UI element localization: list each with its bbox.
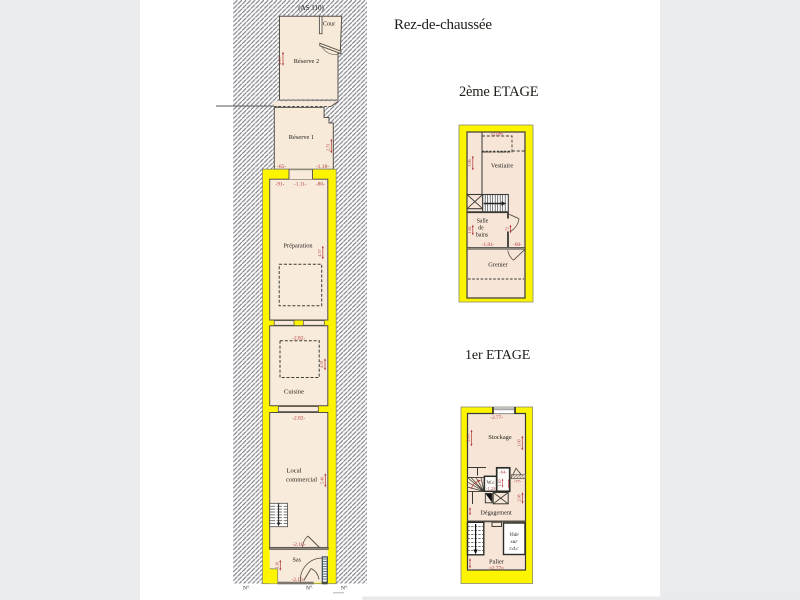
svg-text:1er ETAGE: 1er ETAGE: [465, 348, 530, 363]
svg-text:N°.: N°.: [306, 585, 313, 592]
svg-text:-1.23-: -1.23-: [486, 486, 497, 491]
svg-text:Grenier: Grenier: [488, 262, 508, 269]
svg-text:2.45: 2.45: [466, 434, 471, 441]
svg-text:Réserve 2: Réserve 2: [294, 58, 319, 65]
svg-text:(AS 110): (AS 110): [298, 4, 324, 12]
svg-text:Cuisine: Cuisine: [284, 388, 304, 395]
svg-text:bains: bains: [476, 233, 489, 239]
svg-text:-80-: -80-: [316, 182, 325, 188]
svg-text:Préparation: Préparation: [283, 243, 313, 250]
svg-text:Vide: Vide: [509, 532, 519, 538]
svg-text:N°.: N°.: [341, 585, 348, 592]
svg-text:Dégagement: Dégagement: [480, 510, 512, 517]
svg-text:2.73: 2.73: [326, 144, 331, 151]
svg-text:72: 72: [505, 227, 510, 231]
svg-text:Local: Local: [286, 468, 301, 475]
svg-text:4.10: 4.10: [277, 56, 282, 64]
svg-text:r.d.c: r.d.c: [509, 546, 519, 552]
svg-text:Rez-de-chaussée: Rez-de-chaussée: [394, 17, 492, 33]
svg-text:Cour: Cour: [323, 21, 335, 28]
svg-text:Vestiaire: Vestiaire: [491, 163, 514, 170]
svg-text:-64-: -64-: [499, 470, 507, 475]
svg-text:3.00: 3.00: [517, 439, 522, 446]
svg-text:-2.82-: -2.82-: [292, 415, 305, 421]
svg-text:Stockage: Stockage: [488, 434, 512, 441]
svg-text:1.30: 1.30: [275, 562, 280, 569]
svg-text:Sas: Sas: [292, 557, 301, 564]
svg-text:-1.11-: -1.11-: [294, 182, 307, 188]
svg-text:-77-: -77-: [514, 479, 522, 484]
svg-text:-2.82-: -2.82-: [292, 336, 305, 342]
svg-text:N°.: N°.: [243, 585, 250, 592]
svg-text:2.08: 2.08: [517, 495, 522, 502]
svg-text:1.62: 1.62: [467, 227, 472, 234]
svg-text:4.10: 4.10: [319, 361, 324, 368]
svg-text:-91-: -91-: [276, 182, 285, 188]
svg-text:-2.77-: -2.77-: [490, 415, 503, 421]
svg-text:2ème ETAGE: 2ème ETAGE: [459, 84, 539, 100]
svg-text:3.06: 3.06: [467, 159, 472, 166]
svg-text:sur: sur: [511, 539, 519, 545]
svg-text:Palier: Palier: [489, 559, 505, 566]
svg-text:de: de: [478, 226, 484, 232]
svg-text:≈2.08≈: ≈2.08≈: [491, 132, 504, 137]
svg-text:5.40: 5.40: [320, 477, 325, 484]
svg-text:Salle: Salle: [477, 219, 489, 225]
svg-text:Réserve 1: Réserve 1: [289, 134, 314, 141]
svg-text:commercial: commercial: [286, 477, 317, 484]
svg-text:-2.10-: -2.10-: [292, 542, 305, 548]
svg-text:≈2.77≈: ≈2.77≈: [489, 566, 504, 572]
svg-text:1.10: 1.10: [497, 480, 502, 487]
svg-text:4.37: 4.37: [317, 249, 322, 256]
